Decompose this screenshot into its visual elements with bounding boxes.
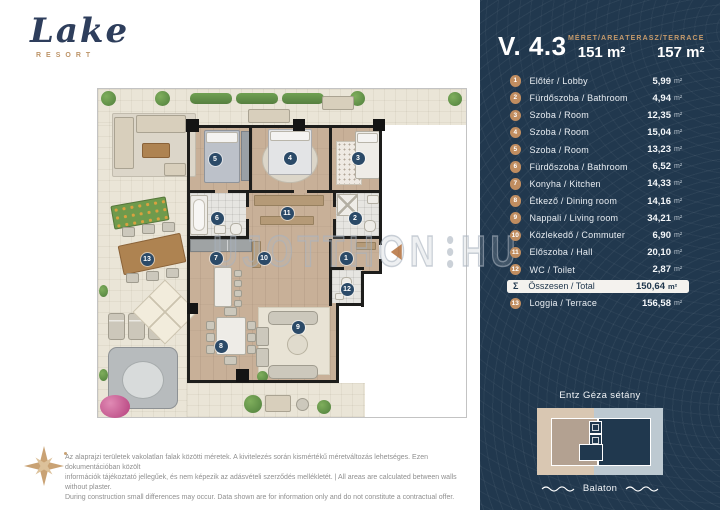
bush — [244, 395, 262, 413]
total-unit: m² — [668, 282, 681, 291]
wall — [361, 271, 382, 274]
room-label: Nappali / Living room — [530, 213, 619, 223]
pillar — [236, 369, 249, 382]
room-area-unit: m² — [674, 95, 687, 102]
door-opening — [215, 190, 228, 193]
total-label: Összesen / Total — [528, 281, 594, 291]
kitchen-island — [214, 267, 232, 307]
hall-wardrobe — [254, 195, 324, 206]
room-area-unit: m² — [674, 266, 687, 273]
wall — [361, 271, 364, 307]
room-area-unit: m² — [674, 129, 687, 136]
bar-stool — [234, 280, 242, 287]
page: Lake RESORT — [0, 0, 720, 510]
entrance-door — [379, 245, 382, 259]
room-row: 10Közlekedő / Commuter6,90m² — [480, 227, 720, 244]
room-list: 1Előtér / Lobby5,99m²2Fürdőszoba / Bathr… — [480, 73, 720, 312]
room-row: 11Előszoba / Hall20,10m² — [480, 244, 720, 261]
room-area-value: 6,52 — [653, 161, 672, 172]
room-area-value: 6,90 — [653, 230, 672, 241]
room-area-value: 156,58 — [642, 298, 671, 309]
room-label: Előszoba / Hall — [530, 247, 593, 257]
room-area-unit: m² — [674, 300, 687, 307]
room-area-value: 4,94 — [653, 93, 672, 104]
room-area-unit: m² — [674, 249, 687, 256]
room-area-value: 5,99 — [653, 76, 672, 87]
room-area-value: 12,35 — [647, 110, 671, 121]
room-area-value: 14,33 — [647, 178, 671, 189]
room-row: 1Előtér / Lobby5,99m² — [480, 73, 720, 90]
wave-icon — [541, 485, 575, 493]
bush — [99, 369, 108, 381]
door-opening — [246, 207, 249, 219]
room-number-badge: 9 — [510, 212, 522, 224]
room-number-badge: 4 — [510, 127, 522, 139]
disclaimer-line: During construction small differences ma… — [65, 493, 467, 503]
flower-bush — [100, 395, 130, 418]
toilet — [230, 223, 242, 235]
room-label: Loggia / Terrace — [530, 298, 598, 308]
toilet — [364, 220, 376, 232]
door-opening — [333, 207, 336, 219]
room-number-badge: 2 — [510, 92, 522, 104]
room-row: 9Nappali / Living room34,21m² — [480, 210, 720, 227]
bush — [101, 91, 116, 106]
bush — [317, 400, 331, 414]
terrace-value: 157 m² — [625, 44, 704, 61]
room-area-unit: m² — [674, 163, 687, 170]
room-marker: 13 — [141, 253, 154, 266]
bush — [155, 91, 170, 106]
lake-label-row: Balaton — [480, 483, 720, 494]
chair — [166, 268, 179, 278]
outdoor-sofa — [114, 117, 134, 169]
total-value: 150,64 — [636, 281, 665, 292]
chair — [142, 224, 155, 234]
room-marker: 2 — [349, 212, 362, 225]
sink — [367, 195, 379, 204]
room-number-badge: 11 — [510, 247, 522, 259]
room-area-unit: m² — [674, 146, 687, 153]
room-rows: 1Előtér / Lobby5,99m²2Fürdőszoba / Bathr… — [480, 73, 720, 279]
outside-area — [364, 273, 382, 383]
outdoor-chair — [265, 395, 291, 412]
kitchen-counter — [190, 239, 252, 252]
room-number-badge: 7 — [510, 178, 522, 190]
chair — [126, 273, 139, 283]
room-label: Szoba / Room — [530, 145, 589, 155]
terrace-label: TERASZ/TERRACE — [625, 35, 704, 42]
room-marker: 5 — [209, 153, 222, 166]
room-marker: 4 — [284, 152, 297, 165]
info-panel: V. 4.3 MÉRET/AREA 151 m² TERASZ/TERRACE … — [480, 0, 720, 510]
room-area-unit: m² — [674, 215, 687, 222]
sun-lounger — [108, 313, 125, 340]
hedge — [282, 93, 324, 104]
chair — [224, 356, 237, 365]
pillar — [186, 119, 199, 132]
area-block: MÉRET/AREA 151 m² — [568, 35, 625, 61]
room-label: WC / Toilet — [530, 265, 576, 275]
pillow — [270, 131, 310, 141]
room-area-unit: m² — [674, 180, 687, 187]
hedge — [190, 93, 232, 104]
room-number-badge: 12 — [510, 264, 522, 276]
chair — [146, 271, 159, 281]
chair — [162, 222, 175, 232]
elevator-icon — [589, 421, 602, 434]
unit-id: V. 4.3 — [498, 31, 567, 62]
bush — [448, 92, 462, 106]
room-label: Étkező / Dining room — [530, 196, 618, 206]
site-section: Entz Géza sétány Balaton — [480, 390, 720, 494]
brand-name: Lake — [30, 14, 150, 48]
pillar — [293, 119, 305, 131]
wall — [187, 125, 382, 128]
disclaimer: Az alaprajzi területek vakolatlan falak … — [65, 453, 467, 503]
building-step — [579, 444, 603, 461]
outdoor-sofa — [248, 109, 290, 123]
room-row: 3Szoba / Room12,35m² — [480, 107, 720, 124]
outdoor-table — [142, 143, 170, 158]
pillow — [357, 133, 378, 143]
floor-plan: 12345678910111213 — [97, 88, 467, 418]
lake-label: Balaton — [583, 483, 617, 494]
sigma-icon: Σ — [513, 281, 518, 291]
room-row: 7Konyha / Kitchen14,33m² — [480, 175, 720, 192]
bathtub-inner — [193, 199, 205, 231]
chair — [247, 333, 256, 342]
wall — [329, 239, 332, 306]
outside-area — [336, 306, 364, 383]
brand-logo: Lake RESORT — [30, 14, 150, 59]
room-row: 12WC / Toilet2,87m² — [480, 261, 720, 278]
lobby-bench — [356, 242, 376, 250]
room-label: Előtér / Lobby — [530, 76, 588, 86]
room-marker: 9 — [292, 321, 305, 334]
brand-subtitle: RESORT — [36, 52, 150, 59]
room-number-badge: 3 — [510, 110, 522, 122]
room-marker: 6 — [211, 212, 224, 225]
room-area-unit: m² — [674, 232, 687, 239]
room-area-value: 20,10 — [647, 247, 671, 258]
room-label: Konyha / Kitchen — [530, 179, 601, 189]
wall — [187, 125, 190, 383]
room-number-badge: 10 — [510, 230, 522, 242]
room-area-value: 2,87 — [653, 264, 672, 275]
door-opening — [344, 267, 356, 270]
pillar — [373, 119, 385, 131]
sofa — [268, 365, 318, 379]
sink — [214, 225, 226, 234]
hedge — [236, 93, 278, 104]
chair — [206, 321, 215, 330]
room-row: 6Fürdőszoba / Bathroom6,52m² — [480, 158, 720, 175]
room-area-value: 15,04 — [647, 127, 671, 138]
chair — [224, 307, 237, 316]
header-areas: MÉRET/AREA 151 m² TERASZ/TERRACE 157 m² — [568, 35, 694, 61]
room-marker: 1 — [340, 252, 353, 265]
outdoor-sofa — [136, 115, 186, 133]
room-area-value: 14,16 — [647, 196, 671, 207]
room-label: Fürdőszoba / Bathroom — [530, 162, 628, 172]
room-row: 2Fürdőszoba / Bathroom4,94m² — [480, 90, 720, 107]
area-value: 151 m² — [568, 44, 625, 61]
room-row: 4Szoba / Room15,04m² — [480, 124, 720, 141]
hot-tub-basin — [122, 361, 164, 399]
bar-stool — [234, 270, 242, 277]
terrace-block: TERASZ/TERRACE 157 m² — [625, 35, 704, 61]
pouf — [296, 398, 309, 411]
room-marker: 3 — [352, 152, 365, 165]
armchair — [256, 348, 269, 367]
street-label: Entz Géza sétány — [480, 390, 720, 401]
room-row: 5Szoba / Room13,23m² — [480, 141, 720, 158]
room-area-unit: m² — [674, 112, 687, 119]
room-row: 8Étkező / Dining room14,16m² — [480, 192, 720, 209]
total-row: Σ Összesen / Total 150,64 m² — [507, 280, 689, 294]
door-opening — [294, 190, 307, 193]
wall — [329, 125, 332, 193]
room-number-badge: 6 — [510, 161, 522, 173]
room-area-value: 13,23 — [647, 144, 671, 155]
bar-stool — [234, 300, 242, 307]
wall — [333, 236, 382, 239]
room-label: Közlekedő / Commuter — [530, 230, 626, 240]
room-area-unit: m² — [674, 78, 687, 85]
coffee-table — [287, 334, 308, 355]
disclaimer-line: információk tájékoztató jellegűek, és ne… — [65, 473, 467, 493]
room-area-unit: m² — [674, 198, 687, 205]
pillow — [206, 132, 238, 143]
wave-icon — [625, 485, 659, 493]
room-number-badge: 1 — [510, 75, 522, 87]
chair — [122, 227, 135, 237]
room-marker: 10 — [258, 252, 271, 265]
chair — [247, 321, 256, 330]
armchair — [256, 327, 269, 346]
room-marker: 12 — [341, 283, 354, 296]
room-marker: 11 — [281, 207, 294, 220]
outdoor-armchair — [164, 163, 186, 176]
wall — [187, 236, 249, 239]
bar-stool — [234, 290, 242, 297]
room-label: Szoba / Room — [530, 110, 589, 120]
pillar — [187, 303, 198, 314]
room-label: Szoba / Room — [530, 127, 589, 137]
outdoor-sofa — [322, 96, 354, 110]
disclaimer-line: Az alaprajzi területek vakolatlan falak … — [65, 453, 467, 473]
room-label: Fürdőszoba / Bathroom — [530, 93, 628, 103]
room-marker: 7 — [210, 252, 223, 265]
wall — [249, 125, 252, 193]
room-number-badge: 8 — [510, 195, 522, 207]
wall — [336, 303, 364, 306]
wall — [187, 380, 339, 383]
site-map — [537, 408, 663, 475]
room-row-loggia: 13 Loggia / Terrace 156,58 m² — [480, 295, 720, 312]
room-number-badge: 5 — [510, 144, 522, 156]
chair — [206, 333, 215, 342]
room-area-value: 34,21 — [647, 213, 671, 224]
bush — [99, 285, 108, 297]
room-number-badge: 13 — [510, 298, 522, 310]
wall — [336, 303, 339, 383]
compass-icon — [24, 446, 64, 486]
room-marker: 8 — [215, 340, 228, 353]
chair — [206, 345, 215, 354]
area-label: MÉRET/AREA — [568, 35, 625, 42]
chair — [247, 345, 256, 354]
